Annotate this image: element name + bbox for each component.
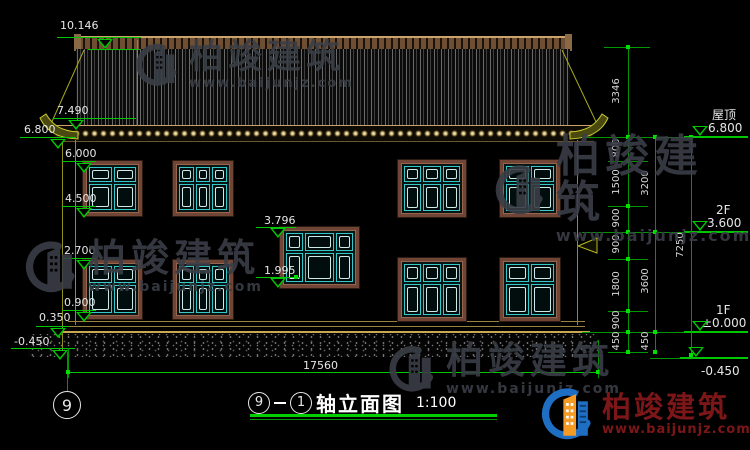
watermark-url: www.baijunjz.com xyxy=(88,279,263,295)
title-axis-end: 1 xyxy=(290,392,312,414)
window-pane xyxy=(531,264,554,282)
level-value-base: -0.450 xyxy=(701,366,740,377)
footer-brand-url: www.baijunjz.com xyxy=(602,422,750,437)
window xyxy=(500,258,560,321)
watermark-brand: 柏竣建筑 xyxy=(88,239,263,279)
window-pane xyxy=(531,284,554,315)
watermark: 柏竣建筑 www.baijunjz.com xyxy=(492,134,750,245)
level-ridge: 10.146 xyxy=(60,20,99,31)
level-ground: -0.450 xyxy=(14,336,49,347)
level-flag xyxy=(50,139,66,149)
watermark-brand: 柏竣建筑 xyxy=(556,134,750,226)
level-plinth: 0.350 xyxy=(39,312,71,323)
watermark-url: www.baijunjz.com xyxy=(556,226,750,245)
window-pane xyxy=(305,253,334,282)
dim-3600: 3600 xyxy=(641,263,651,299)
window-pane xyxy=(506,284,529,315)
watermark-brand: 柏竣建筑 xyxy=(189,40,354,76)
brand-logo-icon xyxy=(22,238,80,296)
level-win1-sill: 0.900 xyxy=(64,297,96,308)
title-dash xyxy=(274,402,286,404)
plinth-line xyxy=(68,326,585,327)
title-scale: 1:100 xyxy=(416,395,456,411)
window-pane xyxy=(423,284,440,315)
brand-logo-icon xyxy=(133,41,181,89)
window xyxy=(398,160,466,217)
footer-brand-logo: 柏竣建筑 www.baijunjz.com xyxy=(538,384,750,444)
level-mid-top: 3.796 xyxy=(264,215,296,226)
dim-450: 450 xyxy=(641,323,651,359)
plinth-cap xyxy=(60,331,590,333)
level-mid-sill: 1.995 xyxy=(264,265,296,276)
level-label-roof: 屋顶 xyxy=(712,110,736,121)
level-eave: 6.800 xyxy=(24,124,56,135)
dim-17560: 17560 xyxy=(303,360,338,371)
level-label-1f: 1F xyxy=(716,305,731,316)
dim-3346: 3346 xyxy=(612,73,622,109)
axis-bubble-9: 9 xyxy=(53,391,81,419)
window-pane xyxy=(196,167,211,182)
watermark-url: www.baijunjz.com xyxy=(189,76,354,91)
window-pane xyxy=(286,233,303,251)
brand-logo-icon xyxy=(538,384,596,444)
window-pane xyxy=(443,264,460,282)
window-pane xyxy=(89,167,112,182)
window-pane xyxy=(196,184,211,210)
window-pane xyxy=(443,284,460,315)
title-axis-start: 9 xyxy=(248,392,270,414)
title-underline xyxy=(250,414,497,417)
cad-elevation-drawing: 10.146 7.490 6.800 6.000 4.500 2.700 0.9… xyxy=(0,0,750,450)
window-pane xyxy=(506,264,529,282)
window-pane xyxy=(114,167,137,182)
window-pane xyxy=(336,233,353,251)
window-pane xyxy=(423,184,440,211)
watermark-brand: 柏竣建筑 xyxy=(446,342,621,381)
level-value-1f: ±0.000 xyxy=(702,318,746,329)
window xyxy=(173,161,233,216)
window-pane xyxy=(336,253,353,282)
window-pane xyxy=(212,167,227,182)
window-pane xyxy=(404,264,421,282)
level-win2-sill: 4.500 xyxy=(65,193,97,204)
brand-logo-icon xyxy=(492,162,548,218)
title-name: 轴立面图 xyxy=(316,388,404,417)
plinth-line xyxy=(68,321,585,322)
drawing-title: 9 1 轴立面图 1:100 xyxy=(248,388,456,417)
level-eave-top: 7.490 xyxy=(57,105,89,116)
window xyxy=(280,227,359,288)
title-underline-2 xyxy=(250,419,497,420)
window-pane xyxy=(179,167,194,182)
window-pane xyxy=(179,184,194,210)
level-value-roof: 6.800 xyxy=(708,123,742,134)
watermark: 柏竣建筑 www.baijunjz.com xyxy=(22,238,263,296)
watermark: 柏竣建筑 www.baijunjz.com xyxy=(133,40,354,91)
dim-1800: 1800 xyxy=(612,266,622,302)
window-pane xyxy=(305,233,334,251)
window xyxy=(83,161,142,216)
window-pane xyxy=(404,166,421,182)
level-win2-top: 6.000 xyxy=(65,148,97,159)
window xyxy=(398,258,466,321)
window-pane xyxy=(423,166,440,182)
footer-brand-name: 柏竣建筑 xyxy=(602,392,750,422)
window-pane xyxy=(423,264,440,282)
window-pane xyxy=(443,184,460,211)
window-pane xyxy=(404,184,421,211)
window-pane xyxy=(212,184,227,210)
window-pane xyxy=(443,166,460,182)
window-pane xyxy=(404,284,421,315)
window-pane xyxy=(114,184,137,210)
